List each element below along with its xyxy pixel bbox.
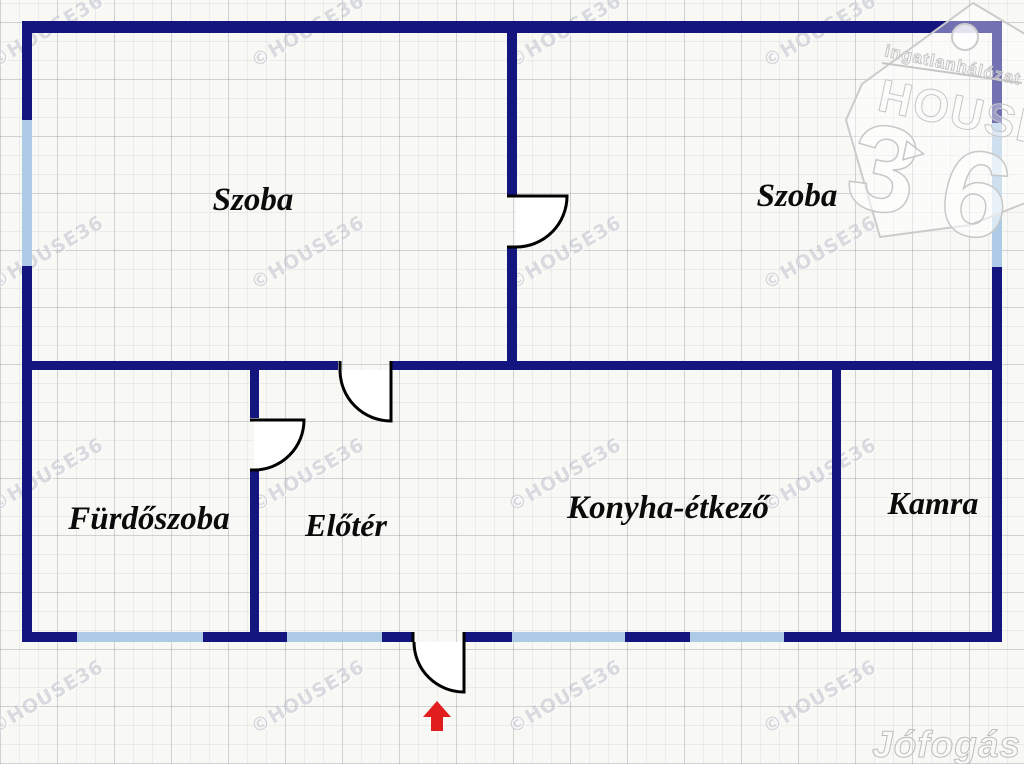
room-label-konyha-etkezo: Konyha-étkező xyxy=(566,490,771,526)
wall-segment xyxy=(392,361,992,370)
wall-segment xyxy=(250,470,259,632)
window-segment xyxy=(287,632,382,642)
room-label-eloter: Előtér xyxy=(304,507,387,543)
wall-segment xyxy=(22,21,1002,33)
window-segment xyxy=(690,632,784,642)
portal-watermark-text: Jófogás xyxy=(872,724,1021,764)
room-label-szoba-left: Szoba xyxy=(213,182,294,218)
door-entrance xyxy=(413,632,464,692)
wall-segment xyxy=(507,247,517,361)
room-label-szoba-right: Szoba xyxy=(757,178,838,214)
door-szoba-eloter xyxy=(340,361,391,421)
window-segment xyxy=(512,632,625,642)
brand-logo-watermark: ingatlanhálózat HOUSE 3 6 xyxy=(837,3,1024,268)
wall-segment xyxy=(832,370,841,632)
room-label-furdoszoba: Fürdőszoba xyxy=(67,501,229,537)
floor-plan-canvas: ©HOUSE36©HOUSE36©HOUSE36©HOUSE36©HOUSE36… xyxy=(0,0,1024,764)
door-furdoszoba-eloter xyxy=(250,420,304,470)
wall-segment xyxy=(32,361,338,370)
door-szoba-szoba xyxy=(507,196,567,247)
logo-tag-hole xyxy=(952,24,978,50)
window-segment xyxy=(22,120,32,266)
entrance-arrow-icon xyxy=(423,701,451,731)
window-segment xyxy=(77,632,203,642)
room-label-kamra: Kamra xyxy=(887,485,979,521)
wall-segment xyxy=(507,33,517,195)
floor-plan-svg: Szoba Szoba Fürdőszoba Előtér Konyha-étk… xyxy=(0,0,1024,764)
wall-segment xyxy=(250,370,259,418)
